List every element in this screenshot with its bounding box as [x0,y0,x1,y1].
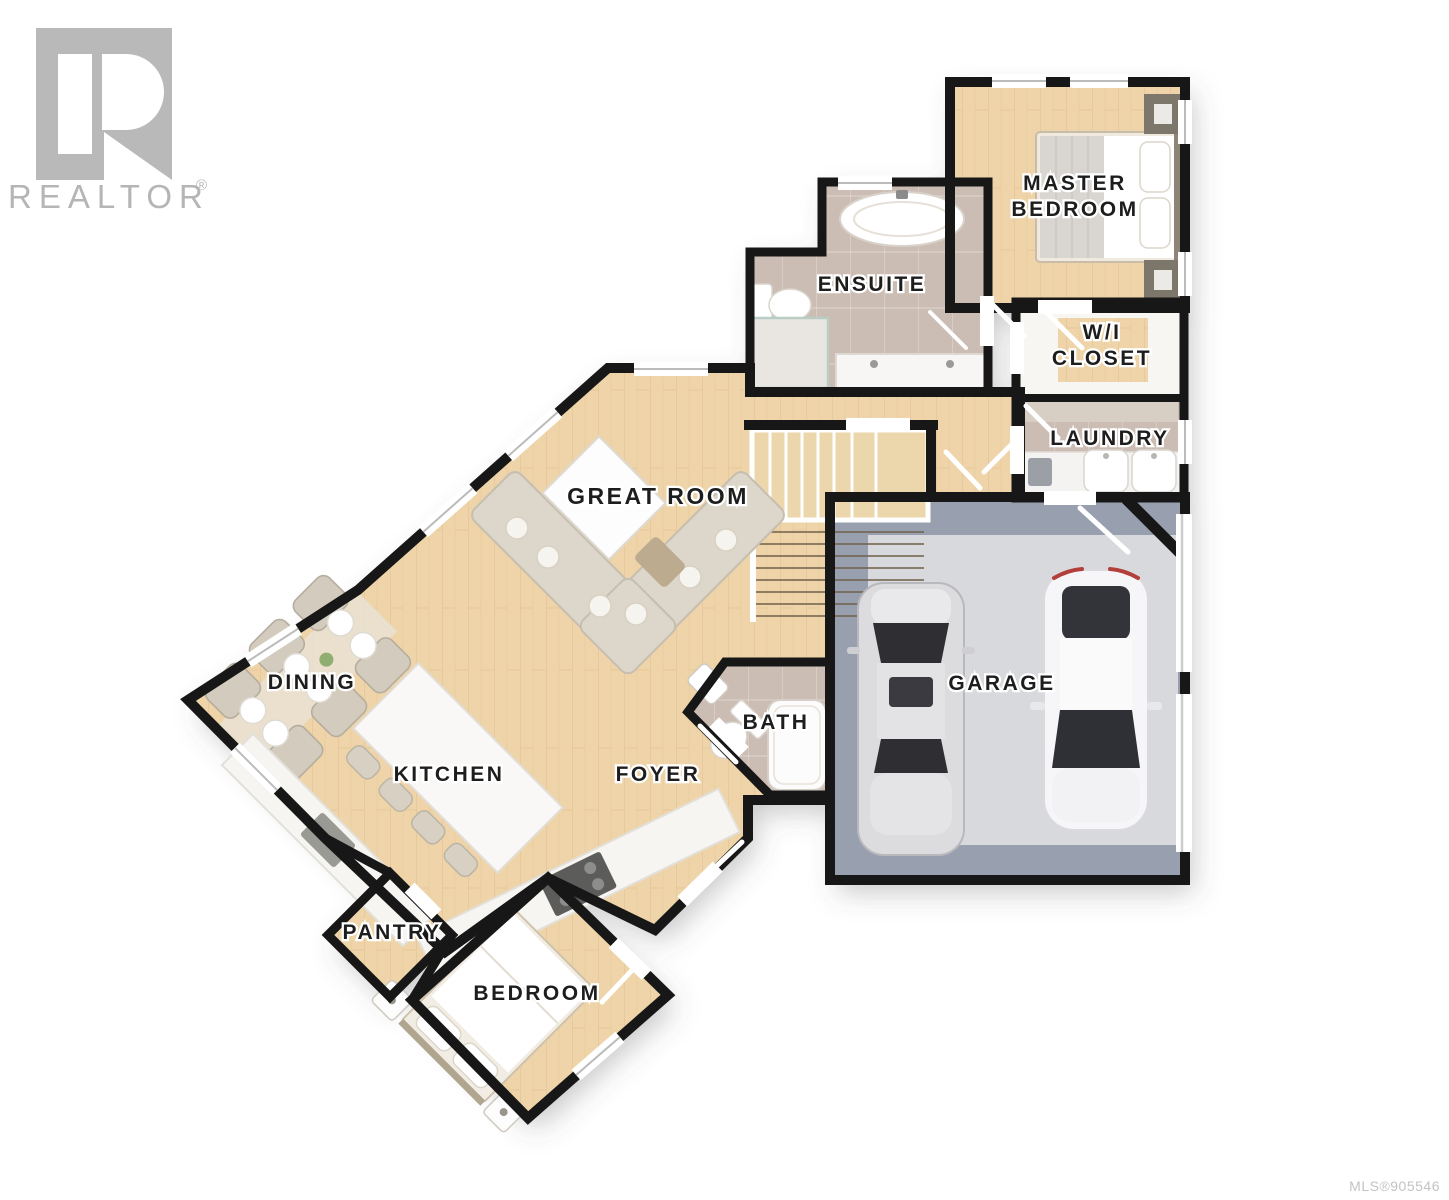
label-wi-closet: W/I [1083,321,1122,344]
label-master-bedroom: MASTER [1023,172,1127,195]
master-pillow [1140,198,1170,248]
window [838,176,892,190]
stair-side-wall [926,428,936,500]
label-great-room: GREAT ROOM [567,483,749,509]
utility-sink [1028,458,1052,486]
mls-number: MLS®905546 [1349,1178,1440,1194]
label-dining: DINING [268,671,357,694]
label-garage: GARAGE [948,672,1055,695]
label-master-bedroom: BEDROOM [1011,198,1138,221]
nightstand [1144,260,1182,300]
window [634,362,708,376]
window [992,74,1046,88]
car-mirror [962,647,975,654]
garage-door [1176,514,1192,672]
label-bedroom: BEDROOM [473,982,600,1005]
label-laundry: LAUNDRY [1050,427,1169,450]
floor-plan-image: MASTER BEDROOM ENSUITE W/I CLOSET LAUNDR… [0,0,1449,1200]
car-white [1030,569,1162,830]
label-pantry: PANTRY [343,921,442,944]
car-mirror [847,647,860,654]
master-pillow [1140,142,1170,192]
shower [752,318,828,388]
label-ensuite: ENSUITE [818,273,927,296]
door-gap [1044,491,1096,505]
label-foyer: FOYER [616,763,701,786]
realtor-logo-text: REALTOR [8,178,210,215]
garage-door [1176,694,1192,852]
nightstand [1144,94,1182,134]
window [1178,252,1192,296]
realtor-r-icon [36,28,172,180]
label-kitchen: KITCHEN [394,763,505,786]
realtor-logo: REALTOR ® [8,28,210,215]
vanity [836,354,986,390]
car-silver [847,583,975,855]
realtor-logo-registered: ® [196,177,207,194]
window [1070,74,1128,88]
door-gap [1010,426,1024,474]
laundry-cabinets [1022,402,1178,422]
door-gap [846,418,910,431]
label-bath: BATH [743,711,810,734]
car-mirror [1147,702,1162,710]
car-mirror [1030,702,1045,710]
tub-faucet [896,190,908,199]
label-wi-closet: CLOSET [1052,347,1152,370]
window [1178,420,1192,464]
window [1178,100,1192,144]
